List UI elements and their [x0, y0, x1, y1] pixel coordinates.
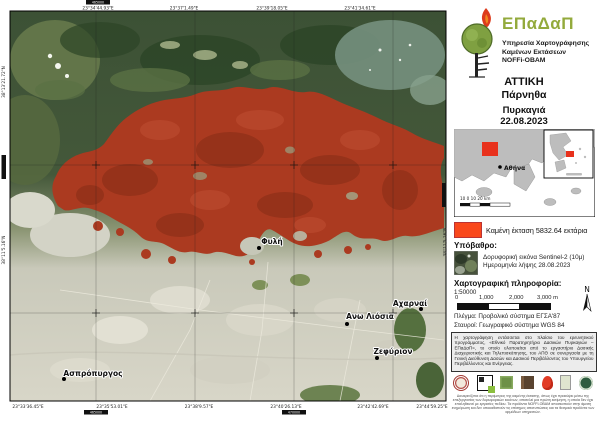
- partner-logos-row: [451, 374, 595, 391]
- map-sheet: Φυλή Αχαρναί Ανω Λιόσια Ζεφύριον Ασπρόπυ…: [0, 0, 600, 424]
- scalebar: [457, 303, 551, 310]
- note-grid-system: Πλέγμα: Προβολικό σύστημα ΕΓΣΑ'87: [454, 313, 560, 320]
- disclaimer-text: Διευκρινίζεται ότι η περίμετρος της καμέ…: [451, 394, 595, 414]
- org-name: Υπηρεσία Χαρτογράφησης Καμένων Εκτάσεων …: [502, 40, 589, 66]
- main-map: Φυλή Αχαρναί Ανω Λιόσια Ζεφύριον Ασπρόπυ…: [0, 0, 448, 418]
- credits-text: Η χαρτογράφηση εντάσσεται στο πλαίσιο το…: [452, 333, 596, 368]
- university-seal-icon: [453, 375, 469, 391]
- locator-inset-map: Αθήνα 10 0 10 20 km: [454, 129, 595, 217]
- cartographic-heading: Χαρτογραφική πληροφορία:: [454, 279, 561, 288]
- coord-bottom-3: 23°38'9.57"E: [185, 404, 214, 410]
- svg-text:465000: 465000: [92, 1, 104, 5]
- coord-top-1: 23°34'44.93"E: [82, 6, 114, 12]
- svg-text:N: N: [584, 285, 590, 294]
- legend-burned-swatch: [454, 222, 482, 238]
- title-event: Πυρκαγιά: [448, 105, 600, 116]
- legend-label: Καμένη έκταση 5832.64 εκτάρια: [486, 226, 587, 235]
- note-cross-system: Σταυροί: Γεωγραφικό σύστημα WGS 84: [454, 322, 564, 329]
- ministry-environment-icon: [579, 376, 593, 390]
- place-label-acharnai: Αχαρναί: [393, 299, 427, 308]
- place-label-fyli: Φυλή: [261, 237, 283, 246]
- coord-left-1: 38°13'21.72"N: [1, 66, 7, 98]
- grid-label-right: [442, 183, 447, 207]
- coord-bottom-2: 23°35'53.01"E: [96, 404, 128, 410]
- place-label-aspropyrgos: Ασπρόπυργος: [63, 369, 122, 378]
- place-label-ano-liosia: Ανω Λιόσια: [346, 312, 394, 321]
- map-imagery: Φυλή Αχαρναί Ανω Λιόσια Ζεφύριον Ασπρόπυ…: [0, 11, 448, 405]
- inset-greece-fire-marker: [566, 151, 574, 157]
- program-logo-icon: [560, 375, 571, 390]
- scalebar-tick-2: 2,000: [509, 295, 524, 301]
- svg-text:465000: 465000: [90, 411, 102, 415]
- basemap-thumbnail: [454, 251, 478, 275]
- basemap-heading: Υπόβαθρο:: [454, 241, 497, 250]
- svg-text:10 0 10 20 km: 10 0 10 20 km: [460, 196, 490, 201]
- title-date: 22.08.2023: [448, 116, 600, 127]
- credits-box: Η χαρτογράφηση εντάσσεται στο πλαίσιο το…: [451, 332, 597, 372]
- wood-research-icon: [521, 376, 534, 389]
- inset-greece-overview: [544, 130, 593, 178]
- org-name-line2: Καμένων Εκτάσεων: [502, 49, 589, 58]
- disclaimer-box: Διευκρινίζεται ότι η περίμετρος της καμέ…: [451, 394, 595, 420]
- inset-fire-extent: [482, 142, 498, 156]
- info-panel: ΕΠαΔαΠ Υπηρεσία Χαρτογράφησης Καμένων Εκ…: [448, 0, 600, 424]
- coord-top-3: 23°39'18.05"E: [256, 6, 288, 12]
- coord-top-2: 23°37'1.49"E: [170, 6, 199, 12]
- place-label-zefyrion: Ζεφύριον: [373, 347, 412, 356]
- map-title-block: ΑΤΤΙΚΗ Πάρνηθα Πυρκαγιά 22.08.2023: [448, 76, 600, 127]
- fire-service-icon: [542, 376, 553, 390]
- coord-bottom-4: 23°40'26.13"E: [270, 404, 302, 410]
- coord-bottom-5: 23°42'42.69"E: [357, 404, 389, 410]
- basemap-line1: Δορυφορική εικόνα Sentinel-2 (10μ): [483, 254, 597, 262]
- lab-logo-icon: [477, 375, 493, 391]
- inset-city-label: Αθήνα: [504, 165, 525, 172]
- coord-left-2: 38°11'5.16"N: [1, 235, 7, 264]
- basemap-description: Δορυφορική εικόνα Sentinel-2 (10μ) Ημερο…: [483, 254, 597, 270]
- coord-top-4: 23°41'34.61"E: [344, 6, 376, 12]
- coord-bottom-1: 23°33'36.45"E: [12, 404, 44, 410]
- inset-city-dot: [498, 165, 502, 169]
- forest-service-icon: [500, 376, 513, 389]
- north-arrow-icon: N: [578, 284, 596, 314]
- title-region: ΑΤΤΙΚΗ: [448, 76, 600, 89]
- coord-bottom-6: 23°44'59.25"E: [416, 404, 448, 410]
- grid-label-left: [2, 155, 7, 179]
- basemap-line2: Ημερομηνία λήψης 28.08.2023: [483, 262, 597, 270]
- scalebar-tick-3: 3,000 m: [537, 295, 558, 301]
- scalebar-tick-0: 0: [455, 295, 458, 301]
- scalebar-tick-1: 1,000: [479, 295, 494, 301]
- svg-text:470000: 470000: [288, 411, 300, 415]
- org-name-line3: NOFFi-OBAM: [502, 57, 589, 66]
- org-name-line1: Υπηρεσία Χαρτογράφησης: [502, 40, 589, 49]
- title-area: Πάρνηθα: [448, 89, 600, 101]
- org-acronym: ΕΠαΔαΠ: [502, 14, 574, 34]
